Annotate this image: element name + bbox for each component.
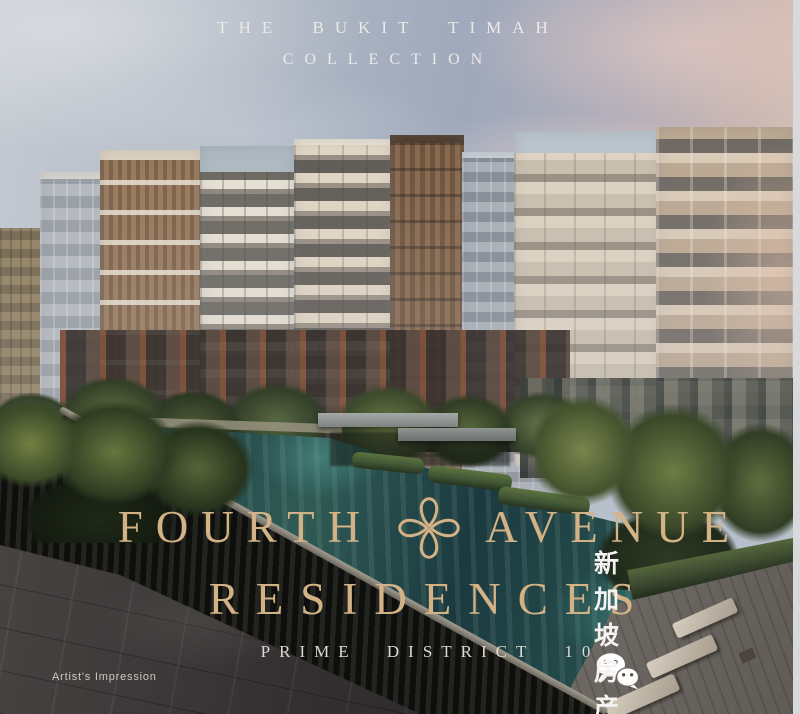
wechat-watermark: 新加坡房产指南 [594, 650, 640, 690]
district-subtitle: PRIME DISTRICT 10 [30, 642, 800, 662]
collection-line2: COLLECTION [0, 51, 788, 69]
quatrefoil-emblem-icon [397, 496, 461, 560]
project-name-line2: RESIDENCES [30, 573, 800, 625]
project-name-left: FOURTH [118, 503, 373, 553]
collection-line1: THE BUKIT TIMAH [0, 18, 788, 38]
artist-impression-note: Artist's Impression [52, 671, 157, 683]
project-title: FOURTH AVENUE RESIDENCES PRIME DISTRICT … [30, 496, 800, 662]
watermark-label: 新加坡房产指南 [594, 544, 640, 714]
pavilion-roof [318, 413, 458, 427]
right-edge-strip [793, 0, 800, 714]
collection-header: THE BUKIT TIMAH COLLECTION [0, 18, 788, 69]
pavilion-roof [398, 428, 516, 441]
promo-image: THE BUKIT TIMAH COLLECTION FOURTH AVENUE… [0, 0, 800, 714]
project-name-row: FOURTH AVENUE [30, 496, 800, 560]
